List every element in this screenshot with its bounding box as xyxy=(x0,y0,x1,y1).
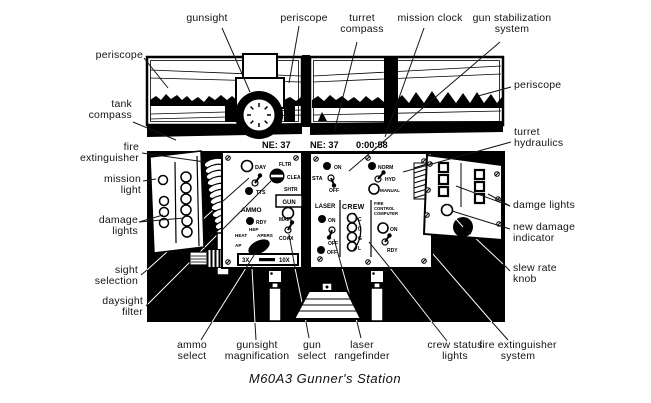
laser-off-light xyxy=(317,246,325,254)
turret-azimuth-readout: NE: 37 xyxy=(310,140,339,150)
rdy-label: RDY xyxy=(256,220,267,226)
window-divider xyxy=(384,57,398,125)
light-panel xyxy=(150,151,204,253)
damage-light-square xyxy=(475,182,484,191)
decor xyxy=(258,173,262,177)
damage-light-square xyxy=(475,170,484,179)
crew-label: CREW xyxy=(342,204,365,211)
manual-label: MANUAL xyxy=(380,188,400,193)
mag-max-label: 10X xyxy=(279,258,290,264)
periscope-windows xyxy=(147,55,503,137)
ammo-ready-light xyxy=(246,217,254,225)
callout-periscope-right: periscope xyxy=(514,80,594,91)
hyd-label: HYD xyxy=(385,177,396,183)
left-handle-column xyxy=(269,288,281,321)
callout-tank-compass: tank compass xyxy=(45,99,132,121)
crew-status-light-driver xyxy=(348,223,357,232)
leader-fire-ext-system xyxy=(492,322,508,340)
damage-light xyxy=(182,216,192,226)
fcc-on-light xyxy=(378,223,388,233)
fcc-label-line3: COMPUTER xyxy=(374,211,398,216)
decor xyxy=(372,272,375,275)
laser-off-label: OFF xyxy=(328,241,338,247)
decor xyxy=(190,252,207,265)
decor xyxy=(387,233,391,237)
callout-fire-extinguisher: fire extinguisher xyxy=(40,142,139,164)
status-readout: NE: 37 NE: 37 0:00:58 xyxy=(262,140,388,150)
damage-light xyxy=(181,194,191,204)
right-handle-column xyxy=(371,288,383,321)
decor xyxy=(290,220,294,224)
damage-light xyxy=(181,183,191,193)
tts-indicator-light xyxy=(245,187,253,195)
ap-label: AP xyxy=(235,243,241,248)
damage-light xyxy=(181,172,191,182)
callout-daysight-filter: daysight filter xyxy=(50,296,143,318)
callout-damge-lights: damge lights xyxy=(513,200,603,211)
diagram-caption: M60A3 Gunner's Station xyxy=(180,371,470,386)
decor xyxy=(326,286,329,289)
crew-status-light-loader xyxy=(348,242,357,251)
laser-on-label: ON xyxy=(328,218,336,224)
sta-off-label: OFF xyxy=(329,188,339,194)
clear-label: CLEAR xyxy=(287,175,305,181)
callout-mission-light: mission light xyxy=(50,174,141,196)
laser-off2-label: OFF xyxy=(327,250,337,256)
callout-periscope-left: periscope xyxy=(58,50,143,61)
decor xyxy=(225,105,236,122)
hydraulics-norm-light xyxy=(368,162,376,170)
callout-new-damage-indicator: new damage indicator xyxy=(513,222,608,244)
decor xyxy=(271,175,283,178)
gunsight-mount xyxy=(243,54,277,79)
damage-light xyxy=(182,227,192,237)
light-panel-face xyxy=(150,151,204,253)
damage-light-square xyxy=(439,163,448,172)
callout-slew-rate-knob: slew rate knob xyxy=(513,263,593,285)
decor xyxy=(270,272,273,275)
callout-fire-extinguisher-system: fire extinguisher system xyxy=(467,340,569,362)
leader-sight-selection xyxy=(141,270,147,275)
right-handle-grip xyxy=(370,270,384,283)
decor xyxy=(209,250,211,267)
leader-laser-rangefinder xyxy=(357,322,361,338)
new-damage-indicator-light xyxy=(442,205,453,216)
leader-gun-select xyxy=(306,322,309,338)
sta-on-label: ON xyxy=(334,165,342,171)
right-window-sill xyxy=(310,121,503,135)
damage-light-square xyxy=(439,187,448,196)
day-indicator-light xyxy=(242,161,253,172)
decor xyxy=(284,105,295,122)
norm-label: NORM xyxy=(378,165,393,171)
heat-label: HEAT xyxy=(235,233,247,238)
tank-azimuth-readout: NE: 37 xyxy=(262,140,291,150)
callout-sight-selection: sight selection xyxy=(50,265,138,287)
stabilization-on-light xyxy=(323,162,331,170)
damage-panel xyxy=(424,155,502,240)
damage-light xyxy=(181,205,191,215)
shtr-label: SHTR xyxy=(284,187,298,193)
magnification-slider-handle xyxy=(259,258,275,261)
laser-label: LASER xyxy=(315,204,336,210)
fcc-rdy-label: RDY xyxy=(387,248,398,254)
apers-label: APERS xyxy=(257,233,273,238)
decor xyxy=(217,250,219,267)
window-pillar xyxy=(302,55,310,127)
manual-indicator-light xyxy=(369,184,379,194)
leader-ammo-select xyxy=(201,322,212,340)
decor xyxy=(213,250,215,267)
left-handle-grip xyxy=(268,270,282,283)
fcc-on-label: ON xyxy=(390,227,398,233)
mag-min-label: 3X xyxy=(242,258,249,264)
callout-gun-stabilization: gun stabilization system xyxy=(457,13,567,35)
day-label: DAY xyxy=(255,165,266,171)
damage-light xyxy=(160,197,169,206)
decor xyxy=(381,170,385,174)
m60a3-gunner-station-diagram: NE: 37 NE: 37 0:00:58 xyxy=(0,0,651,403)
sta-label: STA xyxy=(312,176,323,182)
callout-damage-lights: damage lights xyxy=(50,215,138,237)
hep-label: HEP xyxy=(249,227,258,232)
fltr-label: FLTR xyxy=(279,162,292,168)
crew-l-label: L xyxy=(358,246,361,252)
crew-status-light-gunner xyxy=(348,233,357,242)
console-grille xyxy=(190,249,226,268)
mission-light-lamp xyxy=(159,176,168,185)
callout-turret-hydraulics: turret hydraulics xyxy=(514,127,594,149)
laser-on-light xyxy=(318,215,326,223)
decor xyxy=(327,235,331,239)
damage-light-square xyxy=(439,175,448,184)
gun-label: GUN xyxy=(282,200,295,206)
coax-label: COAX xyxy=(279,236,294,242)
leader-gunsight-mag xyxy=(255,323,256,340)
callout-laser-rangefinder: laser rangefinder xyxy=(323,340,401,362)
callout-gunsight: gunsight xyxy=(172,13,242,24)
